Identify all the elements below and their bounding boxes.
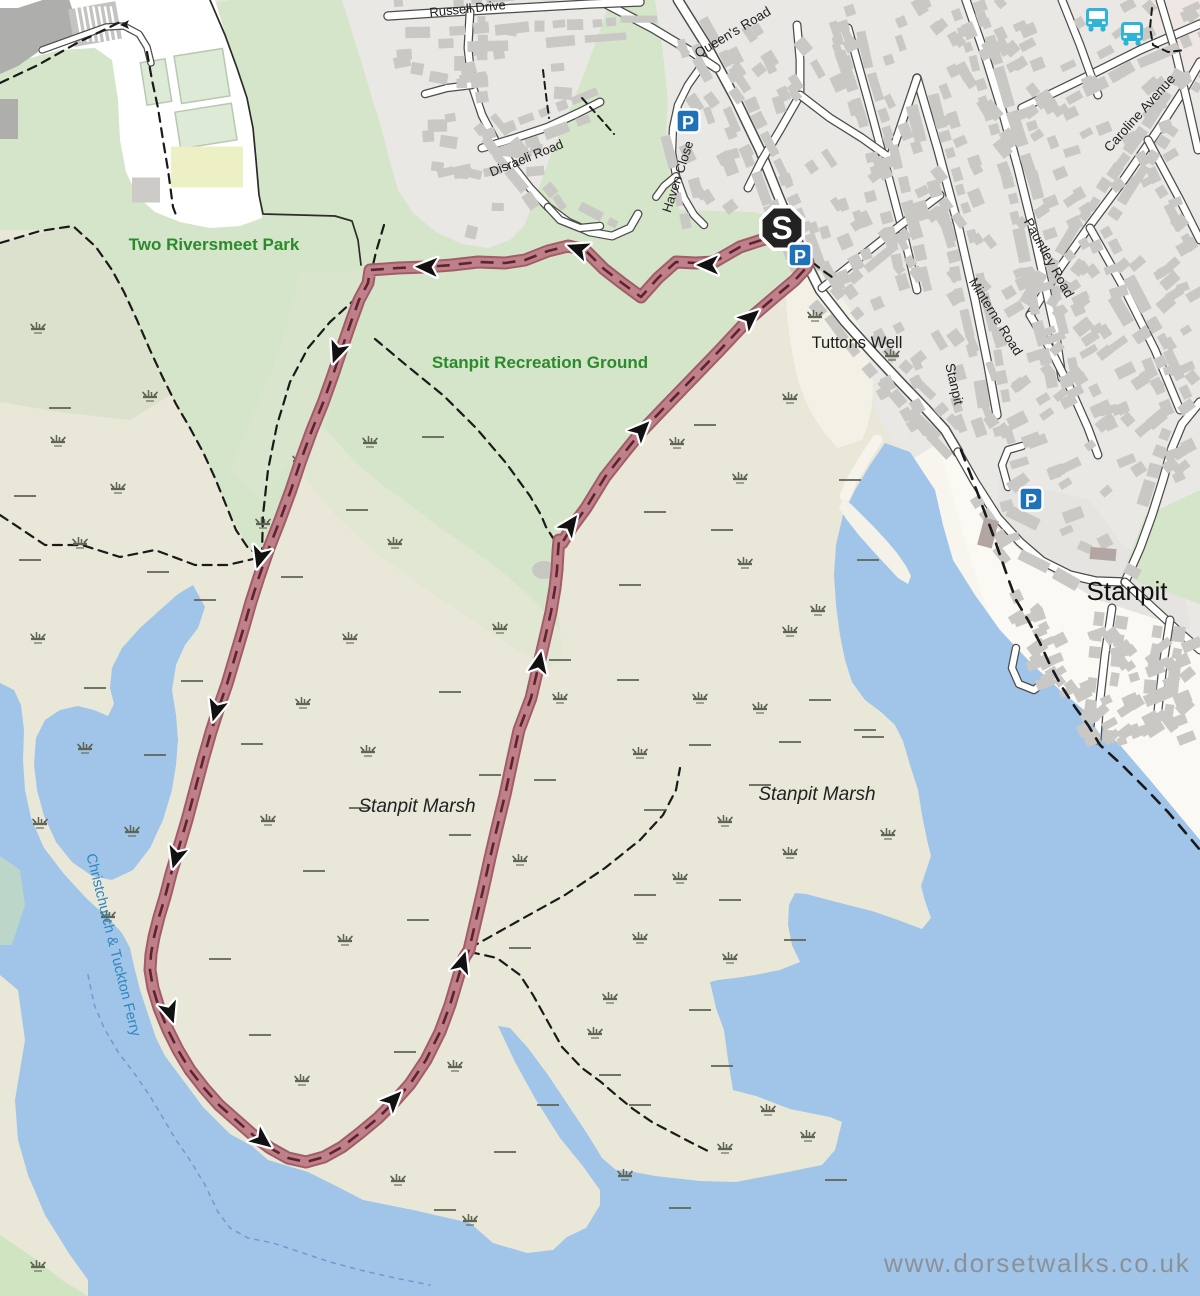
- svg-text:Stanpit Marsh: Stanpit Marsh: [358, 796, 475, 817]
- svg-text:Stanpit Recreation Ground: Stanpit Recreation Ground: [432, 353, 648, 372]
- svg-text:Stanpit Marsh: Stanpit Marsh: [758, 784, 875, 805]
- svg-text:S: S: [771, 210, 792, 246]
- svg-text:P: P: [682, 113, 694, 133]
- svg-text:Stanpit: Stanpit: [1087, 576, 1169, 606]
- svg-text:Tuttons Well: Tuttons Well: [812, 334, 903, 352]
- svg-text:P: P: [794, 247, 806, 267]
- svg-text:www.dorsetwalks.co.uk: www.dorsetwalks.co.uk: [883, 1248, 1191, 1278]
- svg-text:P: P: [1025, 491, 1037, 511]
- svg-text:Two Riversmeet Park: Two Riversmeet Park: [129, 235, 300, 254]
